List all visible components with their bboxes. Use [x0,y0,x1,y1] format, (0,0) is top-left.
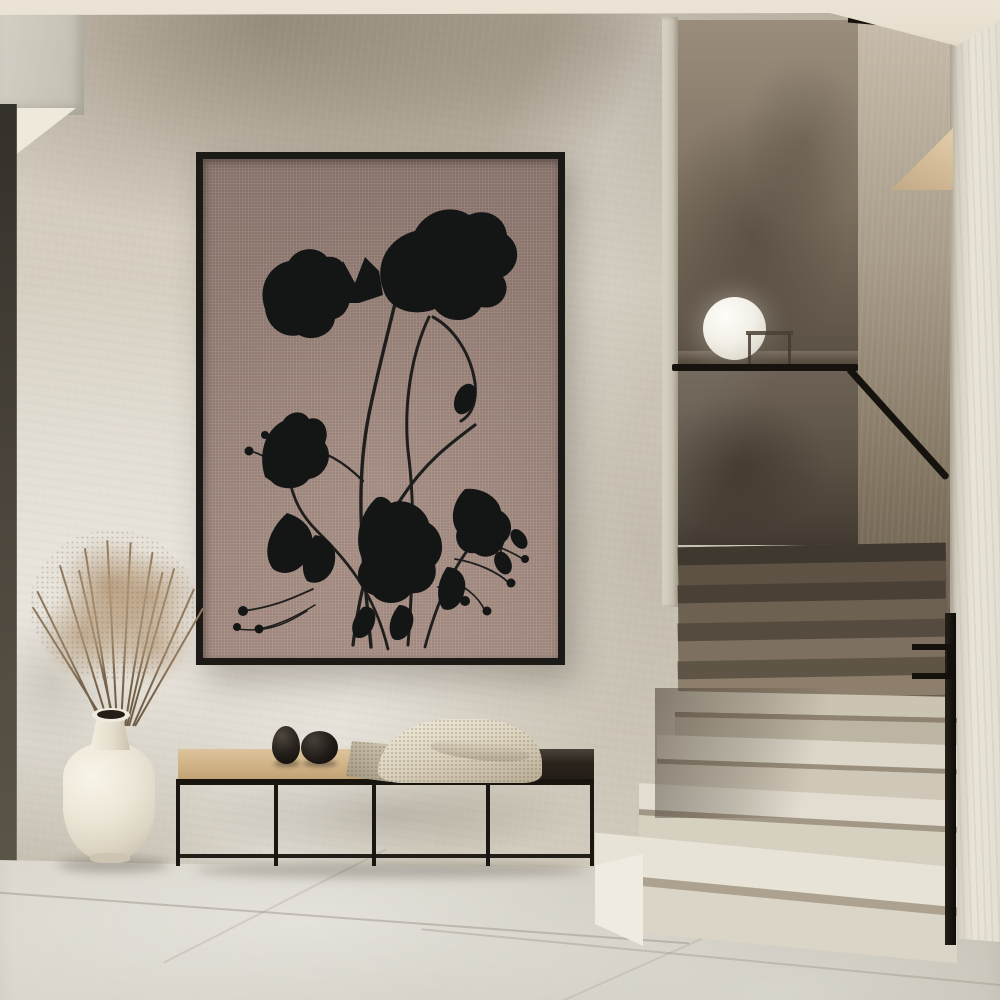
glass-balustrade [678,368,858,545]
ceramic-vase [63,742,155,860]
decor-ball-egg [272,726,300,764]
bench-leg [372,783,376,866]
side-table [746,331,793,335]
bench-leg [590,783,594,866]
botanical-silhouette-illustration [203,159,558,658]
side-table-leg [748,334,751,365]
vase-opening [97,710,125,719]
framed-botanical-print [196,152,565,665]
side-table-leg [788,334,791,365]
hallway-scene [0,0,1000,1000]
bench-leg [176,783,180,866]
vase-base [90,853,130,863]
grass-plume-speckle [30,530,195,680]
bench-leg [274,783,278,866]
bench-floor-shadow [196,862,586,878]
handrail-horizontal [672,364,858,371]
sphere-lamp [703,297,766,360]
decor-ball-sphere [301,731,338,764]
print-linen-canvas [203,159,558,658]
stair-shadow-overlay [655,688,895,818]
stair-left-return-wall [662,17,678,607]
lower-handrail-bracket [912,644,953,679]
stair-back-wall [678,20,858,365]
ceiling-soffit [0,15,84,115]
right-wall-pillar [950,0,1000,947]
stair-lower-flight [595,688,957,946]
bench-frame-bottom-rail [176,854,594,858]
bench-leg [486,783,490,866]
stair-right-wall [858,20,950,620]
